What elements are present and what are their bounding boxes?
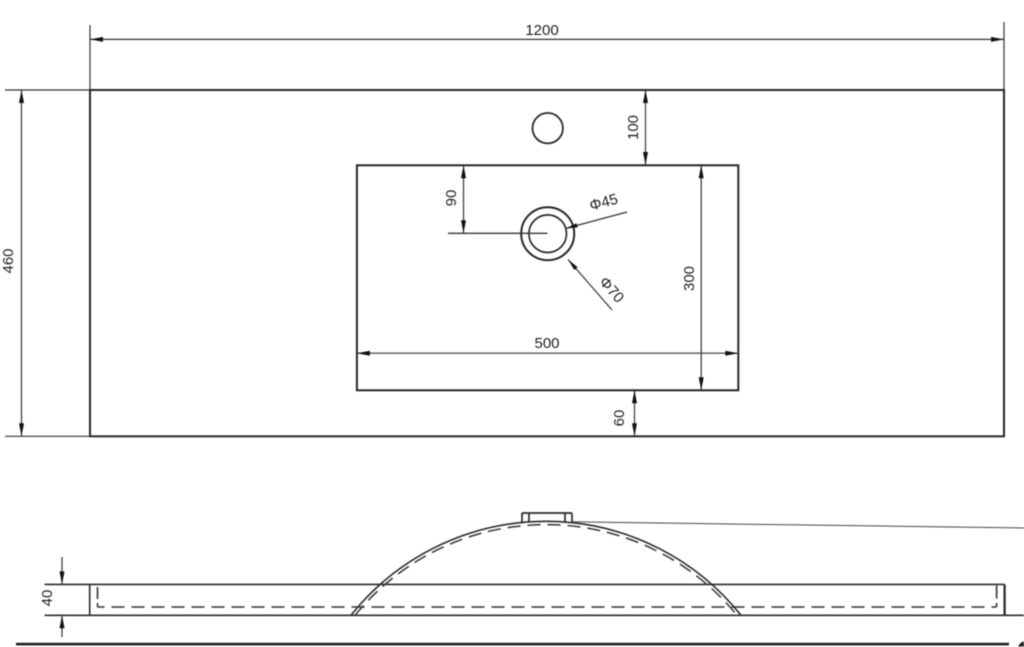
svg-text:460: 460	[0, 248, 17, 273]
svg-text:1200: 1200	[525, 22, 558, 39]
svg-text:300: 300	[681, 266, 698, 291]
svg-text:100: 100	[625, 115, 642, 140]
svg-text:500: 500	[534, 335, 559, 352]
svg-text:60: 60	[611, 410, 628, 427]
svg-text:40: 40	[39, 590, 56, 607]
svg-text:90: 90	[443, 190, 460, 207]
